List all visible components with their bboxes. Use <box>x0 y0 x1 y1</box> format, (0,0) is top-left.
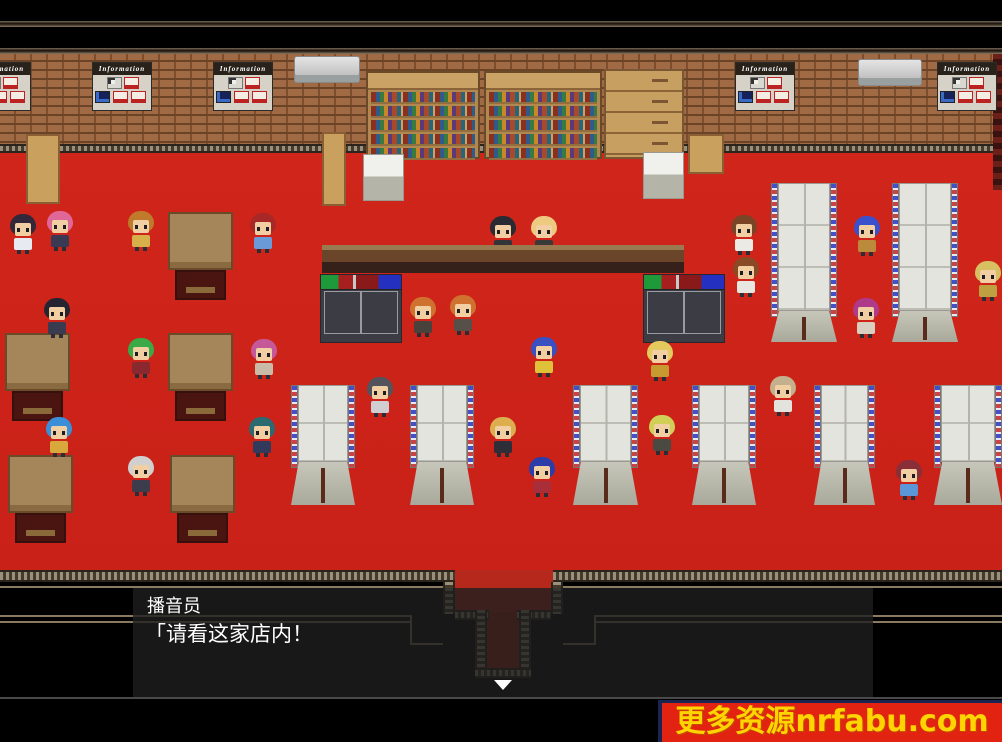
rack-column <box>360 291 398 334</box>
npc-legs <box>257 249 261 253</box>
stand-edge-left <box>291 385 298 468</box>
stand-base <box>692 462 756 505</box>
npc-body <box>132 480 150 492</box>
continue-arrow-icon[interactable] <box>494 680 512 690</box>
npc-dark-suit-man <box>42 298 72 338</box>
bookshelf <box>366 71 480 159</box>
table-top <box>8 455 73 513</box>
stand-panel <box>298 385 348 462</box>
info-board: Information <box>937 62 997 111</box>
npc-blonde-woman-black <box>488 417 518 457</box>
poster-card <box>107 77 122 89</box>
npc-eyes <box>497 431 500 435</box>
npc-legs <box>654 377 658 381</box>
poster-card <box>3 77 18 89</box>
npc-green-spiky-man <box>126 338 156 378</box>
stand-panel <box>580 385 631 462</box>
npc-eyes <box>135 470 138 474</box>
npc-blue-hair-boy <box>852 216 882 256</box>
npc-body <box>979 285 997 297</box>
npc-legs <box>903 496 907 500</box>
npc-legs <box>982 297 986 301</box>
npc-body <box>651 365 669 377</box>
npc-eyes <box>258 353 261 357</box>
npc-eyes <box>536 471 539 475</box>
display-stand-small <box>410 385 474 505</box>
stand-pole <box>923 317 927 340</box>
npc-eyes <box>135 225 138 229</box>
book-row <box>371 120 475 132</box>
info-board-posters <box>736 75 794 110</box>
poster-card <box>252 91 267 103</box>
stand-edge-right <box>830 183 837 317</box>
poster-card <box>216 91 231 103</box>
npc-eyes <box>51 312 54 316</box>
stand-edge-right <box>348 385 355 468</box>
npc-legs <box>740 293 744 297</box>
npc-body <box>735 239 753 251</box>
book-row <box>371 92 475 104</box>
info-board-title: Information <box>93 63 151 75</box>
book-row <box>489 92 597 104</box>
display-stand-small <box>291 385 355 505</box>
info-board-posters <box>938 75 996 110</box>
npc-eyes <box>256 431 259 435</box>
white-pillar <box>363 154 404 201</box>
book-row <box>371 134 475 146</box>
stand-base <box>573 462 638 505</box>
stand-pole <box>843 468 847 503</box>
game-viewport[interactable]: 播音员 「请看这家店内！ 更多资源nrfabu.com InformationI… <box>0 0 1002 742</box>
stand-panel <box>778 183 830 311</box>
book-row <box>489 106 597 118</box>
stand-edge-left <box>771 183 778 317</box>
npc-body <box>533 481 551 493</box>
left-door <box>26 134 60 204</box>
poster-card <box>958 91 973 103</box>
table-legs <box>177 513 228 543</box>
npc-body <box>371 401 389 413</box>
carpet-edge-trim-left <box>0 570 455 582</box>
npc-eyes <box>538 351 541 355</box>
stand-edge-right <box>951 183 958 317</box>
npc-turban-man <box>126 456 156 496</box>
info-board-title: Information <box>0 63 30 75</box>
product-rack <box>320 274 402 343</box>
poster-card <box>131 91 146 103</box>
drawer-handles <box>652 79 668 82</box>
npc-big-blonde-woman <box>645 341 675 381</box>
npc-legs <box>54 247 58 251</box>
info-board-posters <box>214 75 272 110</box>
rack-column <box>324 291 362 334</box>
npc-body <box>132 362 150 374</box>
poster-card <box>95 91 110 103</box>
stand-edge-left <box>814 385 821 468</box>
display-stand-small <box>573 385 638 505</box>
top-border-line-1 <box>0 21 1002 27</box>
stand-panel <box>699 385 749 462</box>
npc-legs <box>738 251 742 255</box>
npc-jellyfish-hat-man <box>44 417 74 457</box>
npc-body <box>14 238 32 250</box>
table-crossbar <box>186 408 215 414</box>
book-row <box>489 134 597 146</box>
air-conditioner-icon <box>294 56 360 83</box>
info-board-posters <box>0 75 30 110</box>
npc-legs <box>860 334 864 338</box>
wooden-table <box>168 333 233 421</box>
rack-sign <box>321 275 401 290</box>
display-stand-small <box>692 385 756 505</box>
npc-eyes <box>457 309 460 313</box>
watermark: 更多资源nrfabu.com <box>658 700 1002 742</box>
npc-eyes <box>654 355 657 359</box>
npc-body <box>132 235 150 247</box>
table-crossbar <box>23 408 52 414</box>
npc-body <box>414 321 432 333</box>
stand-edge-left <box>692 385 699 468</box>
stand-base <box>291 462 355 505</box>
npc-legs <box>457 331 461 335</box>
poster-card <box>245 77 260 89</box>
rack-sign <box>644 275 724 290</box>
npc-eyes <box>257 227 260 231</box>
table-crossbar <box>186 287 215 293</box>
table-top <box>5 333 70 391</box>
stand-edge-right <box>995 385 1002 468</box>
display-stand-tall <box>771 183 837 342</box>
stand-edge-right <box>631 385 638 468</box>
npc-maroon-hair-man <box>894 460 924 500</box>
npc-eyes <box>417 311 420 315</box>
npc-legs <box>51 334 55 338</box>
npc-eyes <box>135 352 138 356</box>
npc-body <box>900 484 918 496</box>
info-board-title: Information <box>214 63 272 75</box>
white-pillar <box>643 152 684 199</box>
drawer-cabinet <box>604 69 684 159</box>
wooden-table <box>8 455 73 543</box>
stand-edge-left <box>410 385 417 468</box>
npc-eyes <box>777 390 780 394</box>
stand-pole <box>722 468 726 503</box>
bottom-border-line <box>0 697 1002 699</box>
platform-side-wall <box>322 132 346 206</box>
npc-eyes <box>656 429 659 433</box>
npc-legs <box>777 412 781 416</box>
npc-legs <box>258 375 262 379</box>
npc-magenta-girl <box>249 339 279 379</box>
shop-counter <box>322 245 684 273</box>
npc-legs <box>17 250 21 254</box>
stand-panel <box>821 385 868 462</box>
npc-eyes <box>861 230 864 234</box>
table-top <box>170 455 235 513</box>
npc-beret-girl <box>851 298 881 338</box>
npc-blue-hair-yellow-shirt <box>529 337 559 377</box>
npc-legs <box>135 247 139 251</box>
table-top <box>168 333 233 391</box>
poster-card <box>124 77 139 89</box>
bookshelf-header <box>486 73 600 90</box>
npc-legs <box>538 373 542 377</box>
book-row <box>489 148 597 160</box>
npc-eyes <box>740 271 743 275</box>
poster-card <box>750 77 765 89</box>
stand-edge-right <box>868 385 875 468</box>
npc-legs <box>53 453 57 457</box>
top-border-line-2 <box>0 48 1002 54</box>
stand-base <box>771 311 837 342</box>
npc-eyes <box>903 474 906 478</box>
poster-card <box>952 77 967 89</box>
npc-body <box>857 322 875 334</box>
stand-pole <box>966 468 970 503</box>
rack-column <box>647 291 685 334</box>
npc-eyes <box>738 229 741 233</box>
stand-panel <box>899 183 951 311</box>
npc-eyes <box>860 312 863 316</box>
npc-eyes <box>982 275 985 279</box>
npc-body <box>454 319 472 331</box>
npc-schoolgirl <box>8 214 38 254</box>
poster-card <box>774 91 789 103</box>
wooden-table <box>170 455 235 543</box>
book-row <box>489 120 597 132</box>
npc-legs <box>656 451 660 455</box>
stand-edge-left <box>934 385 941 468</box>
poster-card <box>767 77 782 89</box>
npc-legs <box>374 413 378 417</box>
bookshelf <box>484 71 602 159</box>
dialogue-text: 「请看这家店内！ <box>145 618 313 648</box>
poster-card <box>969 77 984 89</box>
table-crossbar <box>26 530 55 536</box>
npc-eyes <box>374 391 377 395</box>
book-row <box>371 106 475 118</box>
poster-card <box>756 91 771 103</box>
info-board: Information <box>0 62 31 111</box>
stand-edge-left <box>573 385 580 468</box>
stand-base <box>934 462 1002 505</box>
npc-gray-hair-man <box>365 377 395 417</box>
npc-orange-man-2 <box>448 295 478 335</box>
npc-legs <box>135 374 139 378</box>
stand-pole <box>321 468 325 503</box>
npc-eyes <box>54 225 57 229</box>
npc-orange-man-1 <box>408 297 438 337</box>
npc-blonde-bob-woman <box>973 261 1002 301</box>
info-board: Information <box>213 62 273 111</box>
carpet-edge-trim-right <box>553 570 1002 582</box>
poster-card <box>228 77 243 89</box>
table-top <box>168 212 233 270</box>
npc-body <box>51 235 69 247</box>
npc-eyes <box>53 431 56 435</box>
stand-pole <box>440 468 444 503</box>
poster-card <box>738 91 753 103</box>
npc-body <box>535 361 553 373</box>
npc-body <box>858 240 876 252</box>
product-rack <box>643 274 725 343</box>
npc-legs <box>256 453 260 457</box>
npc-body <box>774 400 792 412</box>
stand-edge-right <box>749 385 756 468</box>
stand-pole <box>604 468 608 503</box>
bookshelf-header <box>368 73 478 90</box>
npc-legs <box>135 492 139 496</box>
poster-card <box>940 91 955 103</box>
npc-eyes <box>17 228 20 232</box>
stand-base <box>410 462 474 505</box>
stand-edge-right <box>467 385 474 468</box>
rack-column <box>683 291 721 334</box>
npc-eyes <box>538 230 541 234</box>
npc-orange-boy <box>126 211 156 251</box>
display-stand-small <box>934 385 1002 505</box>
poster-card <box>10 91 25 103</box>
stand-base <box>892 311 958 342</box>
npc-body <box>48 322 66 334</box>
npc-blue-ponytail-girl <box>527 457 557 497</box>
npc-body <box>653 439 671 451</box>
npc-body <box>737 281 755 293</box>
stand-panel <box>417 385 467 462</box>
npc-pink-girl <box>45 211 75 251</box>
table-legs <box>15 513 66 543</box>
info-board: Information <box>92 62 152 111</box>
poster-card <box>113 91 128 103</box>
npc-red-spiky-boy <box>248 213 278 253</box>
poster-card <box>976 91 991 103</box>
stand-panel <box>941 385 995 462</box>
poster-card <box>234 91 249 103</box>
npc-legs <box>417 333 421 337</box>
stand-edge-left <box>892 183 899 317</box>
table-legs <box>175 391 226 421</box>
npc-tan-hair-man <box>768 376 798 416</box>
npc-body <box>254 237 272 249</box>
npc-yellowgreen-girl <box>647 415 677 455</box>
npc-body <box>494 441 512 453</box>
table-crossbar <box>188 530 217 536</box>
speaker-name: 播音员 <box>147 592 201 618</box>
npc-brown-hair-woman <box>729 215 759 255</box>
wooden-table <box>5 333 70 421</box>
display-stand-small <box>814 385 875 505</box>
display-stand-tall <box>892 183 958 342</box>
table-legs <box>175 270 226 300</box>
wooden-table <box>168 212 233 300</box>
stand-base <box>814 462 875 505</box>
npc-body <box>255 363 273 375</box>
air-conditioner-icon <box>858 59 922 86</box>
npc-legs <box>861 252 865 256</box>
npc-teal-man <box>247 417 277 457</box>
npc-legs <box>497 453 501 457</box>
poster-card <box>0 91 7 103</box>
npc-body <box>50 441 68 453</box>
info-board: Information <box>735 62 795 111</box>
poster-card <box>0 77 1 89</box>
npc-eyes <box>497 230 500 234</box>
info-board-title: Information <box>736 63 794 75</box>
info-board-title: Information <box>938 63 996 75</box>
npc-legs <box>536 493 540 497</box>
npc-body <box>253 441 271 453</box>
npc-brown-hair-man <box>731 257 761 297</box>
info-board-posters <box>93 75 151 110</box>
stand-pole <box>802 317 806 340</box>
wood-crate <box>688 134 724 174</box>
